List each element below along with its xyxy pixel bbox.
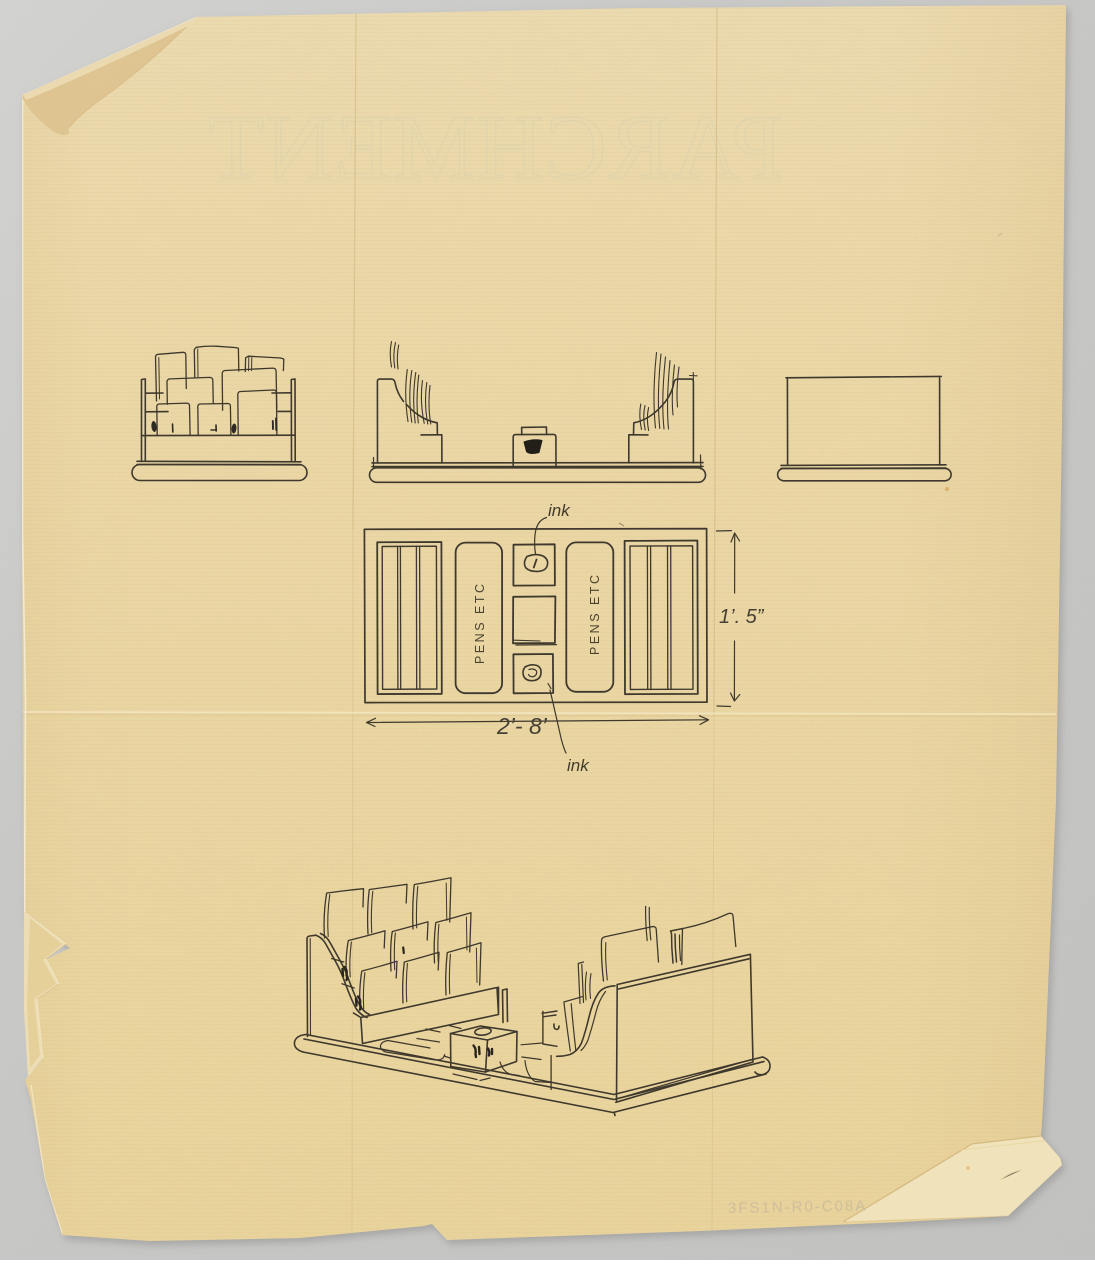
svg-text:PENS ETC: PENS ETC — [473, 581, 487, 664]
svg-text:PARCHMENT: PARCHMENT — [206, 96, 783, 198]
svg-text:ink: ink — [548, 501, 571, 520]
svg-text:1’. 5”: 1’. 5” — [719, 606, 765, 628]
svg-text:3FS1N-R0-C08A: 3FS1N-R0-C08A — [728, 1198, 868, 1217]
svg-text:PENS ETC: PENS ETC — [588, 572, 602, 655]
svg-text:2’- 8’: 2’- 8’ — [496, 713, 548, 739]
svg-text:ink: ink — [567, 756, 590, 775]
